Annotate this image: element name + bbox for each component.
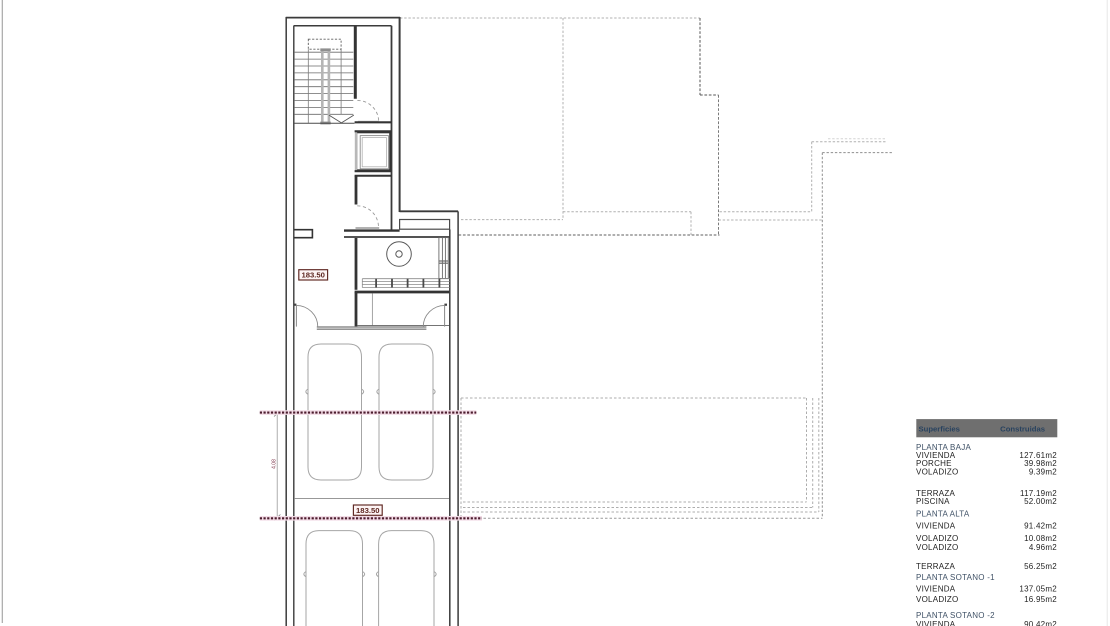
svg-text:4.96m2: 4.96m2 xyxy=(1029,543,1057,552)
svg-text:91.42m2: 91.42m2 xyxy=(1024,522,1057,531)
svg-text:VOLADIZO: VOLADIZO xyxy=(916,467,958,476)
svg-text:PLANTA ALTA: PLANTA ALTA xyxy=(916,510,970,519)
svg-text:VIVIENDA: VIVIENDA xyxy=(916,584,956,593)
svg-text:16.95m2: 16.95m2 xyxy=(1024,595,1057,604)
svg-text:183.50: 183.50 xyxy=(356,506,380,515)
svg-text:VIVIENDA: VIVIENDA xyxy=(916,620,956,626)
svg-text:VOLADIZO: VOLADIZO xyxy=(916,534,958,543)
svg-text:VOLADIZO: VOLADIZO xyxy=(916,543,958,552)
svg-text:52.00m2: 52.00m2 xyxy=(1024,497,1057,506)
svg-text:VIVIENDA: VIVIENDA xyxy=(916,522,956,531)
svg-text:TERRAZA: TERRAZA xyxy=(916,562,956,571)
svg-text:90.42m2: 90.42m2 xyxy=(1024,620,1057,626)
svg-text:183.50: 183.50 xyxy=(301,271,325,280)
svg-text:Superficies: Superficies xyxy=(919,424,960,433)
svg-text:Construidas: Construidas xyxy=(1000,424,1045,433)
svg-text:9.39m2: 9.39m2 xyxy=(1029,467,1057,476)
svg-text:4.08: 4.08 xyxy=(272,459,278,469)
svg-text:VOLADIZO: VOLADIZO xyxy=(916,595,958,604)
svg-text:PISCINA: PISCINA xyxy=(916,497,950,506)
svg-text:137.05m2: 137.05m2 xyxy=(1019,584,1057,593)
svg-text:PLANTA SOTANO -1: PLANTA SOTANO -1 xyxy=(916,573,995,582)
svg-text:56.25m2: 56.25m2 xyxy=(1024,562,1057,571)
svg-text:PLANTA SOTANO -2: PLANTA SOTANO -2 xyxy=(916,611,995,620)
svg-text:10.08m2: 10.08m2 xyxy=(1024,534,1057,543)
